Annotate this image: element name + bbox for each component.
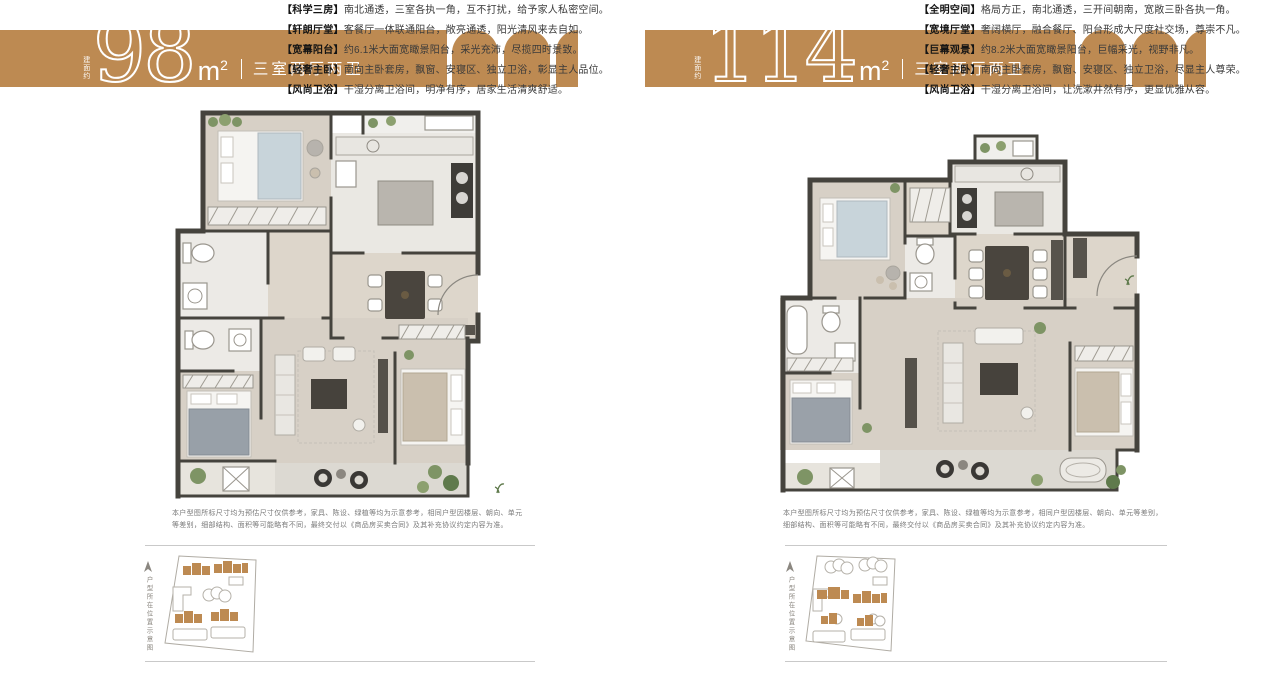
left-area-unit-sup: 2 [220, 57, 228, 73]
right-area-prefix: 建面约 [693, 56, 701, 80]
feature-tag: 【宽幕阳台】 [282, 45, 344, 56]
feature-text: 干湿分离卫浴间，明净有序，居家生活清爽舒适。 [344, 85, 568, 96]
feature-item: 【科学三房】南北通透，三室各执一角，互不打扰，给予家人私密空间。 [282, 6, 609, 16]
feature-tag: 【轻奢主卧】 [282, 65, 344, 76]
feature-tag: 【风尚卫浴】 [919, 85, 981, 96]
feature-tag: 【宽境厅堂】 [919, 25, 981, 36]
feature-tag: 【科学三房】 [282, 5, 344, 16]
left-site-plan [159, 553, 261, 655]
left-divider-bottom [145, 661, 535, 662]
left-feature-list: 【科学三房】南北通透，三室各执一角，互不打扰，给予家人私密空间。 【轩朗厅堂】客… [282, 6, 609, 96]
feature-tag: 【风尚卫浴】 [282, 85, 344, 96]
right-divider-top [785, 545, 1167, 546]
feature-item: 【风尚卫浴】干湿分离卫浴间，明净有序，居家生活清爽舒适。 [282, 86, 609, 96]
feature-text: 干湿分离卫浴间，让洗漱井然有序，更显优雅从容。 [981, 85, 1216, 96]
north-icon [143, 561, 153, 573]
right-banner-separator [902, 59, 903, 79]
feature-tag: 【巨幕观景】 [919, 45, 981, 56]
left-map-caption-col: 户型所在位置示意图 [143, 561, 153, 653]
feature-item: 【轻奢主卧】南向主卧套房，飘窗、安寝区、独立卫浴，尽显主人尊荣。 [919, 66, 1246, 76]
left-area-unit: m2 [198, 60, 228, 83]
feature-text: 约6.1米大面宽瞰景阳台，采光充沛，尽揽四时景致。 [344, 45, 583, 56]
right-site-plan-caption: 户型所在位置示意图 [785, 576, 795, 653]
feature-text: 南向主卧套房，飘窗、安寝区、独立卫浴，彰显主人品位。 [344, 65, 609, 76]
left-floor-plan [163, 103, 523, 510]
right-floor-plan-svg [775, 128, 1140, 518]
feature-item: 【轩朗厅堂】客餐厅一体联通阳台，敞亮通透，阳光清风来去自如。 [282, 26, 609, 36]
right-area-unit-sup: 2 [882, 57, 890, 73]
right-area-unit-base: m [859, 56, 882, 86]
right-map-caption-col: 户型所在位置示意图 [785, 561, 795, 653]
feature-tag: 【轻奢主卧】 [919, 65, 981, 76]
feature-item: 【宽境厅堂】奢阔横厅，融合餐厅、阳台形成大尺度社交场，尊崇不凡。 [919, 26, 1246, 36]
feature-text: 客餐厅一体联通阳台，敞亮通透，阳光清风来去自如。 [344, 25, 589, 36]
feature-item: 【全明空间】格局方正，南北通透，三开间朝南，宽敞三卧各执一角。 [919, 6, 1246, 16]
feature-tag: 【全明空间】 [919, 5, 981, 16]
feature-text: 奢阔横厅，融合餐厅、阳台形成大尺度社交场，尊崇不凡。 [981, 25, 1246, 36]
left-floor-plan-svg [163, 103, 523, 505]
feature-item: 【巨幕观景】约8.2米大面宽瞰景阳台，巨幅采光，视野非凡。 [919, 46, 1246, 56]
left-feature-block: 户型所在位置示意图 [143, 553, 261, 655]
bedroom-3 [183, 375, 253, 457]
left-area-prefix: 建面约 [82, 56, 90, 80]
tv-cabinet [905, 358, 917, 428]
right-floor-plan [775, 128, 1140, 523]
left-divider-top [145, 545, 535, 546]
right-area-number: 114 [704, 21, 855, 83]
wardrobe-hatch [208, 207, 326, 225]
north-icon [785, 561, 795, 573]
feature-tag: 【轩朗厅堂】 [282, 25, 344, 36]
outdoor-tub [1060, 458, 1106, 482]
left-banner-separator [241, 59, 242, 79]
right-feature-list: 【全明空间】格局方正，南北通透，三开间朝南，宽敞三卧各执一角。 【宽境厅堂】奢阔… [919, 6, 1246, 96]
right-site-plan [801, 553, 903, 655]
feature-item: 【轻奢主卧】南向主卧套房，飘窗、安寝区、独立卫浴，彰显主人品位。 [282, 66, 609, 76]
brochure-page: 建面约 98 m2 三室两厅两卫 [0, 0, 1269, 687]
right-feature-block: 户型所在位置示意图 [785, 553, 903, 655]
plant-marker-icon [495, 484, 504, 493]
right-disclaimer: 本户型图所标尺寸均为预估尺寸仅供参考，家具、陈设、绿植等均为示意参考，相同户型因… [783, 508, 1167, 532]
left-area-number: 98 [93, 21, 194, 83]
feature-text: 格局方正，南北通透，三开间朝南，宽敞三卧各执一角。 [981, 5, 1236, 16]
right-divider-bottom [785, 661, 1167, 662]
right-area-unit: m2 [859, 60, 889, 83]
left-area-unit-base: m [198, 56, 221, 86]
master-bedroom [1075, 346, 1133, 436]
tv-cabinet [378, 359, 388, 433]
feature-item: 【风尚卫浴】干湿分离卫浴间，让洗漱井然有序，更显优雅从容。 [919, 86, 1246, 96]
feature-text: 南北通透，三室各执一角，互不打扰，给予家人私密空间。 [344, 5, 609, 16]
left-disclaimer: 本户型图所标尺寸均为预估尺寸仅供参考，家具、陈设、绿植等均为示意参考，相同户型因… [172, 508, 524, 532]
feature-text: 南向主卧套房，飘窗、安寝区、独立卫浴，尽显主人尊荣。 [981, 65, 1246, 76]
feature-item: 【宽幕阳台】约6.1米大面宽瞰景阳台，采光充沛，尽揽四时景致。 [282, 46, 609, 56]
feature-text: 约8.2米大面宽瞰景阳台，巨幅采光，视野非凡。 [981, 45, 1200, 56]
left-site-plan-caption: 户型所在位置示意图 [143, 576, 153, 653]
